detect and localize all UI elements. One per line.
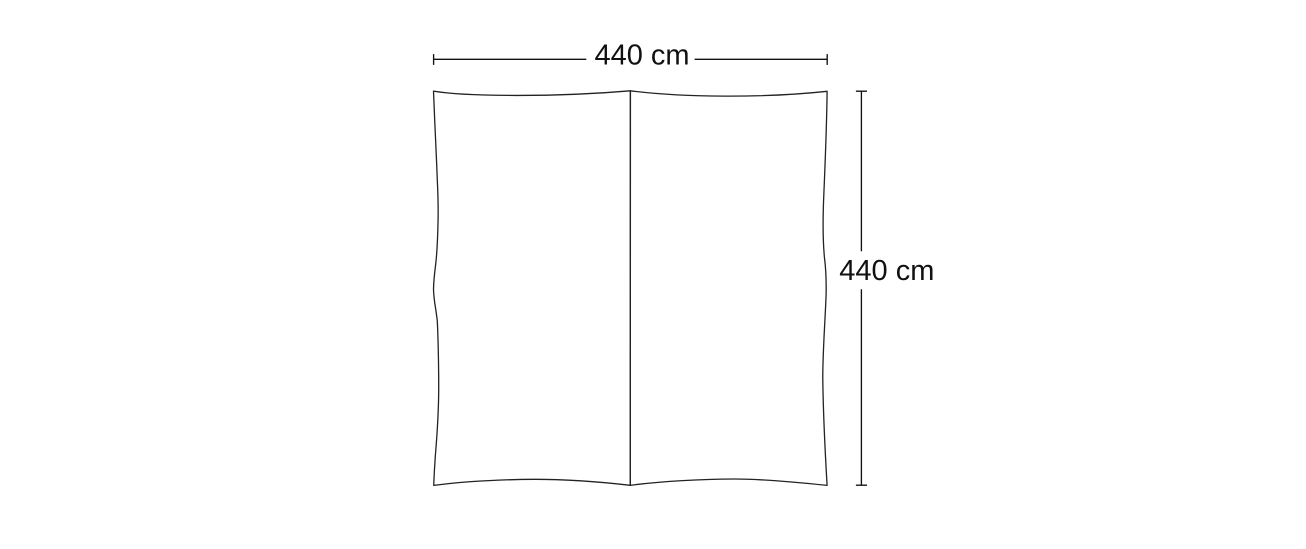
- svg-text:440 cm: 440 cm: [594, 39, 689, 71]
- svg-text:440 cm: 440 cm: [839, 255, 934, 287]
